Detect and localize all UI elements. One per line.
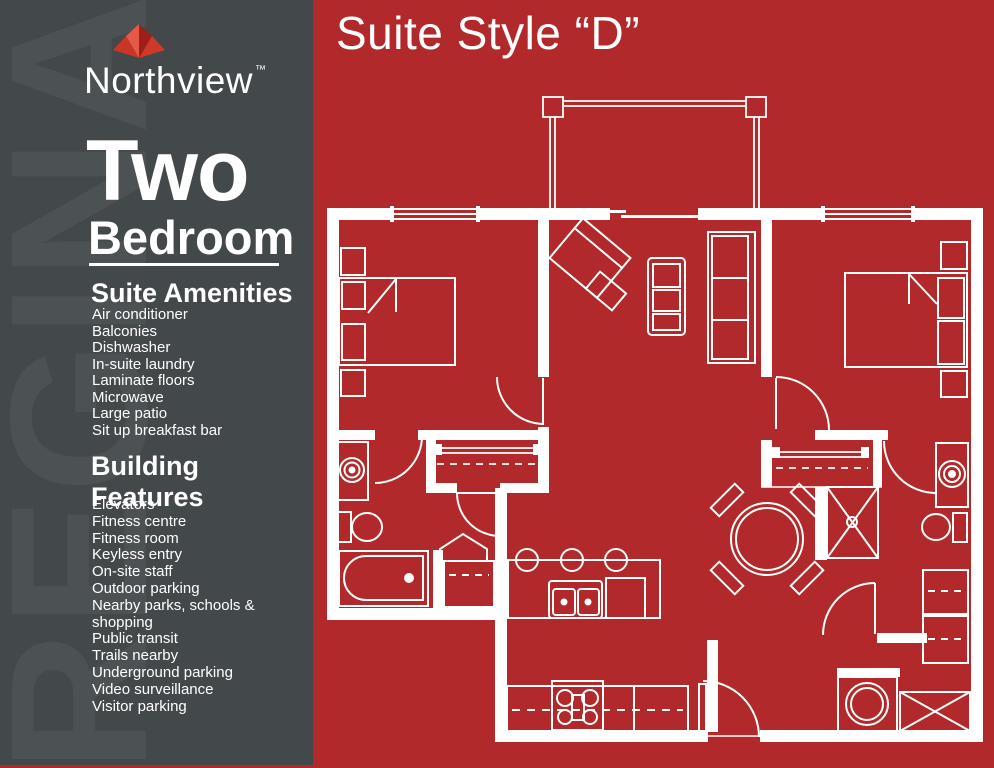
bed-2-icon — [845, 242, 967, 397]
toilet-2-icon — [922, 513, 967, 542]
door-swing-bathroom2 — [884, 441, 936, 493]
door-swing-laundry — [823, 583, 875, 635]
side-table-icon — [586, 272, 626, 311]
washer-1-icon — [337, 442, 368, 500]
breakfast-bar-icon — [508, 549, 660, 618]
coffee-table-icon — [648, 258, 685, 335]
dishwasher-icon — [606, 578, 645, 618]
door-swing-bedroom1 — [497, 377, 544, 424]
washer-2-icon — [838, 677, 897, 731]
stove-icon — [552, 681, 603, 730]
dryer-icon — [900, 692, 970, 731]
fixtures — [337, 97, 970, 737]
toilet-1-icon — [338, 512, 382, 542]
kitchen-counter-icon — [507, 686, 688, 731]
linen-closet-icon — [923, 570, 968, 663]
window-bedroom1-icon — [392, 209, 478, 219]
kitchen-sink-icon — [549, 581, 602, 618]
window-bedroom2-icon — [823, 209, 913, 219]
floorplan-drawing — [0, 0, 994, 768]
bathtub-icon — [339, 551, 428, 606]
door-swing-bedroom2 — [776, 377, 829, 430]
pantry-icon — [440, 534, 494, 607]
balcony-railing-icon — [543, 97, 766, 208]
bed-1-icon — [339, 248, 455, 396]
closet-2-icon — [761, 452, 882, 487]
shower-icon — [827, 487, 878, 558]
closet-1-icon — [437, 448, 540, 464]
bathroom2-sink-icon — [936, 443, 968, 507]
dining-table-icon — [711, 484, 824, 595]
door-swing-bathroom1 — [375, 436, 422, 483]
media-shelf-icon — [708, 232, 755, 363]
door-swing-hall — [457, 493, 500, 536]
